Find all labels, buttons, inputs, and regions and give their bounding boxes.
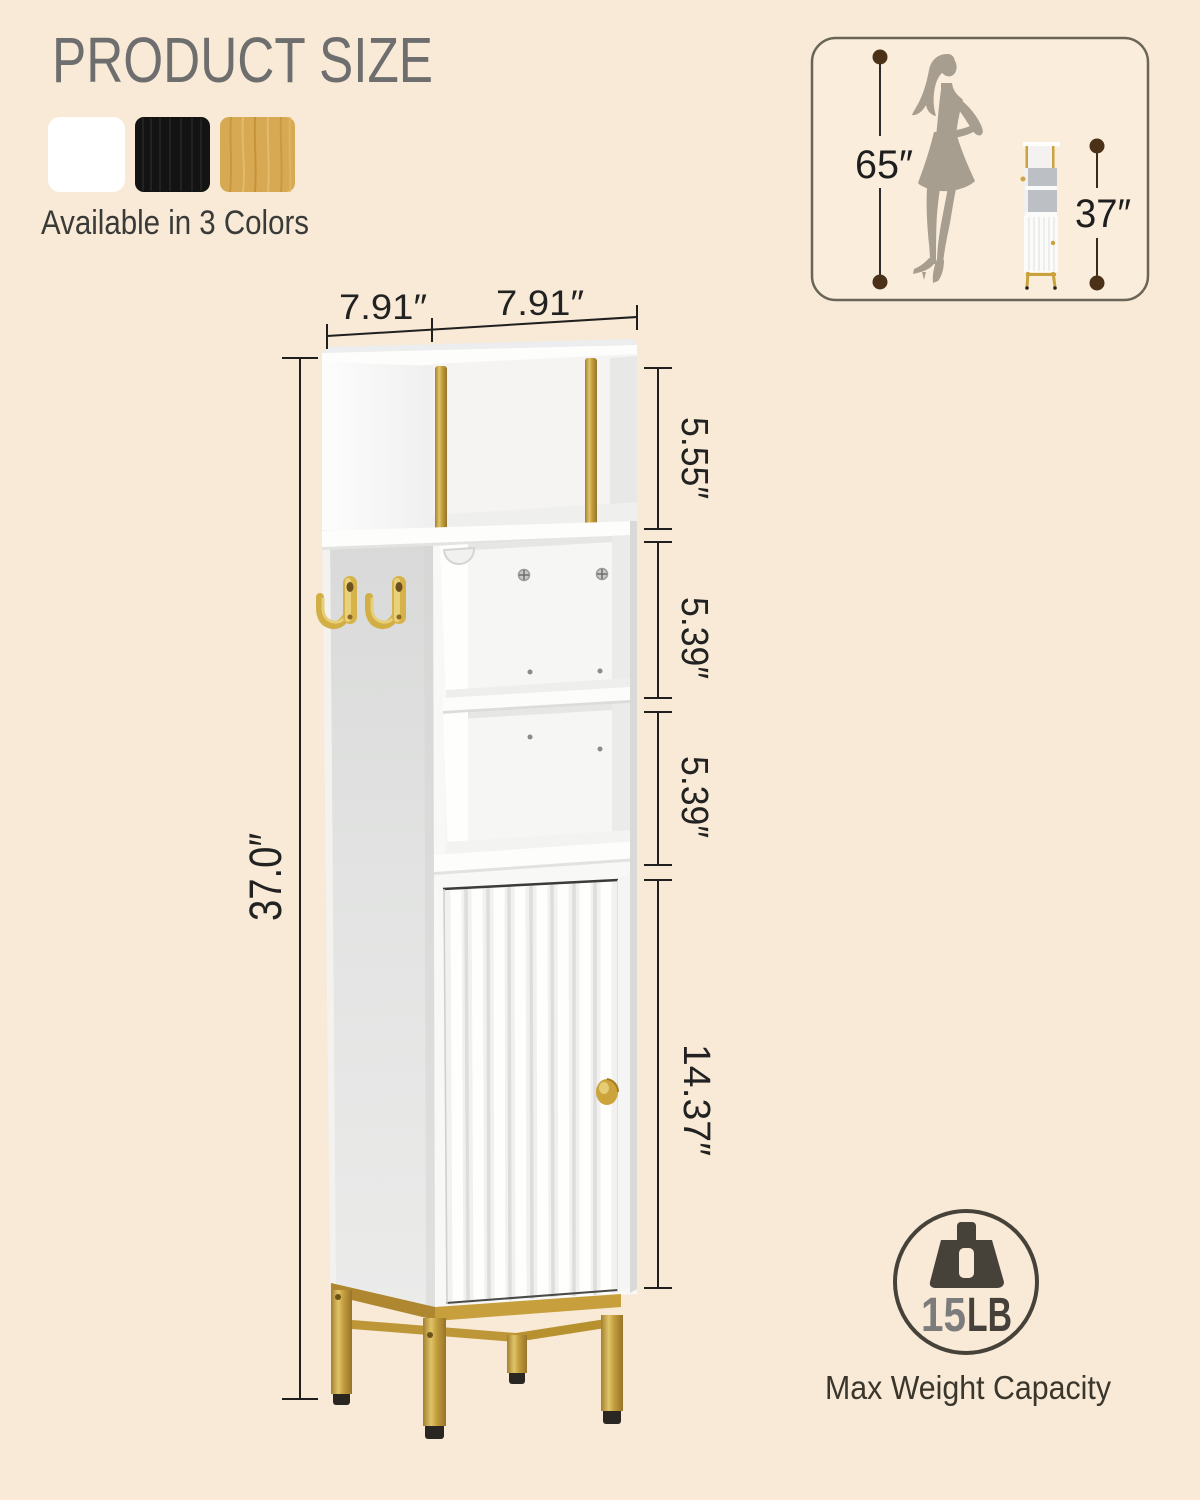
svg-text:5.39″: 5.39″ bbox=[673, 597, 715, 679]
svg-text:7.91″: 7.91″ bbox=[496, 284, 584, 323]
svg-text:LB: LB bbox=[967, 1289, 1012, 1342]
svg-text:Available in 3 Colors: Available in 3 Colors bbox=[41, 204, 309, 242]
svg-text:14.37″: 14.37″ bbox=[675, 1044, 717, 1156]
svg-text:37.0″: 37.0″ bbox=[240, 833, 291, 921]
svg-text:7.91″: 7.91″ bbox=[339, 288, 427, 327]
svg-text:5.55″: 5.55″ bbox=[673, 417, 715, 499]
svg-text:65″: 65″ bbox=[855, 143, 913, 187]
svg-text:Max Weight Capacity: Max Weight Capacity bbox=[825, 1369, 1111, 1406]
svg-text:15: 15 bbox=[921, 1289, 966, 1342]
svg-text:PRODUCT SIZE: PRODUCT SIZE bbox=[52, 24, 433, 96]
svg-text:37″: 37″ bbox=[1075, 192, 1131, 236]
svg-text:5.39″: 5.39″ bbox=[673, 756, 715, 838]
